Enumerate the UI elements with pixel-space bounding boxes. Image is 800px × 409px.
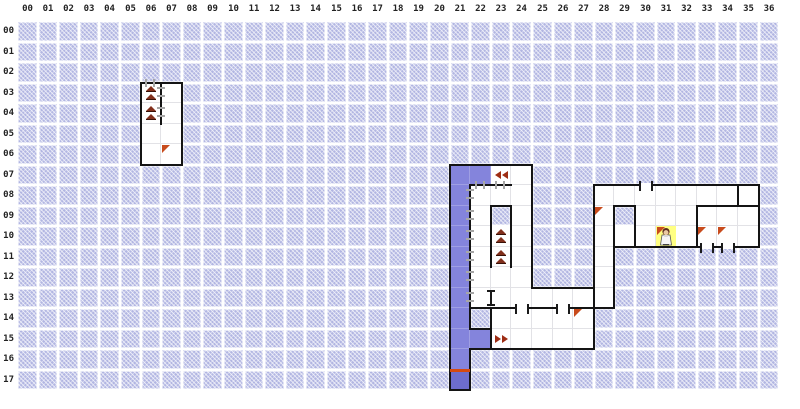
map-cell-unexplored[interactable]: [471, 63, 490, 82]
map-cell-unexplored[interactable]: [554, 22, 572, 41]
map-cell-unexplored[interactable]: [39, 207, 57, 225]
map-cell-unexplored[interactable]: [224, 125, 243, 143]
map-cell-floor[interactable]: [738, 206, 759, 226]
map-cell-unexplored[interactable]: [59, 268, 78, 287]
map-cell-unexplored[interactable]: [286, 330, 304, 348]
map-cell-unexplored[interactable]: [286, 43, 304, 61]
map-cell-unexplored[interactable]: [698, 289, 716, 307]
map-cell-unexplored[interactable]: [657, 145, 675, 164]
map-cell-unexplored[interactable]: [389, 207, 407, 225]
map-cell-unexplored[interactable]: [615, 330, 634, 348]
map-cell-floor[interactable]: [738, 185, 759, 206]
map-cell-unexplored[interactable]: [348, 227, 366, 246]
map-cell-unexplored[interactable]: [245, 84, 263, 102]
map-cell-unexplored[interactable]: [18, 145, 37, 164]
map-cell-unexplored[interactable]: [80, 207, 98, 225]
map-cell-unexplored[interactable]: [677, 330, 696, 348]
map-cell-unexplored[interactable]: [739, 125, 758, 143]
map-cell-unexplored[interactable]: [512, 145, 531, 164]
map-cell-unexplored[interactable]: [100, 207, 119, 225]
map-cell-unexplored[interactable]: [389, 104, 407, 123]
map-cell-unexplored[interactable]: [739, 248, 758, 266]
map-cell-unexplored[interactable]: [18, 289, 37, 307]
map-cell-unexplored[interactable]: [142, 330, 160, 348]
map-cell-unexplored[interactable]: [183, 309, 201, 328]
map-cell-unexplored[interactable]: [183, 43, 201, 61]
map-cell-unexplored[interactable]: [286, 104, 304, 123]
map-cell-unexplored[interactable]: [430, 125, 449, 143]
map-cell-unexplored[interactable]: [533, 145, 552, 164]
map-cell-unexplored[interactable]: [698, 63, 716, 82]
map-cell-unexplored[interactable]: [224, 104, 243, 123]
map-cell-unexplored[interactable]: [348, 309, 366, 328]
map-cell-unexplored[interactable]: [121, 166, 140, 184]
map-cell-floor[interactable]: [656, 206, 676, 226]
map-cell-unexplored[interactable]: [554, 186, 572, 205]
map-cell-floor[interactable]: [532, 329, 553, 349]
map-cell-unexplored[interactable]: [574, 207, 593, 225]
map-cell-unexplored[interactable]: [677, 268, 696, 287]
map-cell-unexplored[interactable]: [121, 227, 140, 246]
map-cell-unexplored[interactable]: [368, 227, 387, 246]
map-cell-unexplored[interactable]: [224, 145, 243, 164]
map-cell-unexplored[interactable]: [636, 268, 655, 287]
map-cell-unexplored[interactable]: [59, 43, 78, 61]
player-marker[interactable]: [659, 227, 673, 250]
map-cell-floor[interactable]: [635, 226, 656, 247]
map-cell-unexplored[interactable]: [533, 104, 552, 123]
map-cell-unexplored[interactable]: [265, 84, 284, 102]
map-cell-unexplored[interactable]: [389, 145, 407, 164]
map-cell-unexplored[interactable]: [39, 125, 57, 143]
map-cell-unexplored[interactable]: [698, 166, 716, 184]
map-cell-unexplored[interactable]: [739, 371, 758, 389]
map-cell-unexplored[interactable]: [224, 350, 243, 369]
map-cell-unexplored[interactable]: [203, 125, 222, 143]
map-cell-unexplored[interactable]: [224, 84, 243, 102]
map-cell-unexplored[interactable]: [698, 84, 716, 102]
map-cell-unexplored[interactable]: [595, 350, 613, 369]
map-cell-unexplored[interactable]: [286, 268, 304, 287]
map-cell-unexplored[interactable]: [203, 248, 222, 266]
map-cell-unexplored[interactable]: [327, 22, 346, 41]
map-cell-unexplored[interactable]: [80, 43, 98, 61]
map-cell-unexplored[interactable]: [59, 248, 78, 266]
map-cell-unexplored[interactable]: [162, 22, 181, 41]
map-cell-unexplored[interactable]: [18, 84, 37, 102]
map-cell-unexplored[interactable]: [430, 145, 449, 164]
map-cell-unexplored[interactable]: [327, 186, 346, 205]
map-cell-unexplored[interactable]: [121, 84, 140, 102]
map-cell-unexplored[interactable]: [265, 227, 284, 246]
map-cell-unexplored[interactable]: [533, 227, 552, 246]
map-cell-unexplored[interactable]: [574, 84, 593, 102]
map-cell-unexplored[interactable]: [100, 125, 119, 143]
map-cell-unexplored[interactable]: [409, 289, 428, 307]
map-cell-unexplored[interactable]: [18, 371, 37, 389]
map-cell-unexplored[interactable]: [121, 63, 140, 82]
map-cell-floor[interactable]: [594, 247, 614, 267]
map-cell-unexplored[interactable]: [100, 309, 119, 328]
map-cell-unexplored[interactable]: [18, 125, 37, 143]
map-cell-unexplored[interactable]: [430, 84, 449, 102]
map-cell-unexplored[interactable]: [348, 22, 366, 41]
map-cell-unexplored[interactable]: [265, 145, 284, 164]
map-cell-unexplored[interactable]: [492, 43, 510, 61]
map-cell-unexplored[interactable]: [286, 22, 304, 41]
map-cell-unexplored[interactable]: [224, 22, 243, 41]
map-cell-unexplored[interactable]: [327, 145, 346, 164]
map-cell-unexplored[interactable]: [18, 63, 37, 82]
map-cell-unexplored[interactable]: [59, 125, 78, 143]
map-cell-unexplored[interactable]: [183, 166, 201, 184]
map-cell-unexplored[interactable]: [574, 371, 593, 389]
map-cell-unexplored[interactable]: [430, 104, 449, 123]
map-cell-unexplored[interactable]: [739, 145, 758, 164]
map-cell-unexplored[interactable]: [451, 145, 469, 164]
map-cell-unexplored[interactable]: [533, 125, 552, 143]
map-cell-unexplored[interactable]: [306, 248, 325, 266]
map-cell-unexplored[interactable]: [430, 248, 449, 266]
door-icon[interactable]: [466, 271, 474, 283]
map-cell-unexplored[interactable]: [739, 84, 758, 102]
map-cell-unexplored[interactable]: [121, 104, 140, 123]
map-cell-unexplored[interactable]: [574, 227, 593, 246]
map-cell-unexplored[interactable]: [554, 227, 572, 246]
map-cell-unexplored[interactable]: [368, 330, 387, 348]
map-cell-unexplored[interactable]: [368, 43, 387, 61]
map-cell-unexplored[interactable]: [203, 186, 222, 205]
map-cell-unexplored[interactable]: [409, 330, 428, 348]
map-cell-unexplored[interactable]: [739, 330, 758, 348]
map-cell-unexplored[interactable]: [760, 22, 778, 41]
map-cell-unexplored[interactable]: [718, 22, 737, 41]
map-cell-unexplored[interactable]: [574, 248, 593, 266]
map-cell-floor[interactable]: [614, 185, 635, 206]
map-cell-unexplored[interactable]: [142, 186, 160, 205]
map-cell-unexplored[interactable]: [59, 371, 78, 389]
map-cell-unexplored[interactable]: [80, 248, 98, 266]
map-cell-unexplored[interactable]: [512, 43, 531, 61]
map-cell-unexplored[interactable]: [286, 145, 304, 164]
map-cell-unexplored[interactable]: [677, 166, 696, 184]
map-cell-unexplored[interactable]: [39, 186, 57, 205]
map-cell-unexplored[interactable]: [39, 350, 57, 369]
door-icon[interactable]: [157, 107, 165, 119]
map-cell-unexplored[interactable]: [306, 186, 325, 205]
map-cell-unexplored[interactable]: [59, 104, 78, 123]
map-cell-unexplored[interactable]: [760, 63, 778, 82]
map-cell-unexplored[interactable]: [224, 371, 243, 389]
map-cell-unexplored[interactable]: [636, 309, 655, 328]
map-cell-unexplored[interactable]: [430, 330, 449, 348]
map-cell-floor[interactable]: [511, 329, 532, 349]
map-cell-unexplored[interactable]: [59, 227, 78, 246]
map-cell-unexplored[interactable]: [245, 207, 263, 225]
map-cell-unexplored[interactable]: [760, 289, 778, 307]
map-cell-unexplored[interactable]: [492, 207, 510, 225]
map-cell-unexplored[interactable]: [327, 330, 346, 348]
map-cell-unexplored[interactable]: [615, 43, 634, 61]
map-cell-unexplored[interactable]: [554, 371, 572, 389]
map-cell-unexplored[interactable]: [389, 350, 407, 369]
map-cell-unexplored[interactable]: [100, 227, 119, 246]
map-cell-unexplored[interactable]: [18, 22, 37, 41]
map-cell-unexplored[interactable]: [306, 63, 325, 82]
map-cell-unexplored[interactable]: [121, 350, 140, 369]
map-cell-unexplored[interactable]: [760, 186, 778, 205]
door-icon[interactable]: [466, 189, 474, 201]
map-cell-unexplored[interactable]: [327, 309, 346, 328]
map-cell-unexplored[interactable]: [657, 104, 675, 123]
map-cell-unexplored[interactable]: [533, 268, 552, 287]
map-cell-unexplored[interactable]: [409, 43, 428, 61]
map-cell-unexplored[interactable]: [245, 63, 263, 82]
map-cell-unexplored[interactable]: [183, 350, 201, 369]
map-cell-unexplored[interactable]: [554, 63, 572, 82]
map-cell-unexplored[interactable]: [636, 43, 655, 61]
map-cell-unexplored[interactable]: [306, 268, 325, 287]
map-cell-floor[interactable]: [141, 144, 161, 165]
map-cell-unexplored[interactable]: [595, 104, 613, 123]
map-cell-unexplored[interactable]: [533, 371, 552, 389]
map-cell-unexplored[interactable]: [306, 207, 325, 225]
map-cell-floor[interactable]: [573, 329, 594, 349]
map-cell-unexplored[interactable]: [574, 186, 593, 205]
map-cell-unexplored[interactable]: [348, 145, 366, 164]
map-cell-unexplored[interactable]: [554, 248, 572, 266]
map-cell-unexplored[interactable]: [121, 371, 140, 389]
map-cell-unexplored[interactable]: [471, 22, 490, 41]
map-cell-unexplored[interactable]: [574, 43, 593, 61]
map-cell-unexplored[interactable]: [121, 43, 140, 61]
map-cell-unexplored[interactable]: [59, 84, 78, 102]
map-cell-floor[interactable]: [594, 185, 614, 206]
map-cell-unexplored[interactable]: [389, 268, 407, 287]
map-cell-purpledark[interactable]: [450, 370, 470, 390]
map-cell-unexplored[interactable]: [59, 166, 78, 184]
map-cell-unexplored[interactable]: [327, 248, 346, 266]
map-cell-unexplored[interactable]: [739, 22, 758, 41]
map-cell-unexplored[interactable]: [121, 186, 140, 205]
map-cell-unexplored[interactable]: [80, 84, 98, 102]
map-cell-unexplored[interactable]: [80, 22, 98, 41]
map-cell-unexplored[interactable]: [203, 104, 222, 123]
map-cell-unexplored[interactable]: [677, 289, 696, 307]
map-cell-unexplored[interactable]: [636, 84, 655, 102]
map-cell-unexplored[interactable]: [430, 63, 449, 82]
map-cell-unexplored[interactable]: [183, 371, 201, 389]
map-cell-unexplored[interactable]: [162, 166, 181, 184]
map-cell-unexplored[interactable]: [142, 207, 160, 225]
map-cell-unexplored[interactable]: [368, 84, 387, 102]
map-cell-unexplored[interactable]: [224, 268, 243, 287]
map-cell-unexplored[interactable]: [368, 125, 387, 143]
map-cell-unexplored[interactable]: [739, 104, 758, 123]
map-cell-floor[interactable]: [594, 226, 614, 247]
map-cell-unexplored[interactable]: [615, 84, 634, 102]
map-cell-unexplored[interactable]: [595, 371, 613, 389]
map-cell-unexplored[interactable]: [183, 227, 201, 246]
map-cell-unexplored[interactable]: [245, 186, 263, 205]
map-cell-unexplored[interactable]: [80, 350, 98, 369]
map-cell-unexplored[interactable]: [657, 63, 675, 82]
map-cell-unexplored[interactable]: [162, 63, 181, 82]
map-cell-unexplored[interactable]: [245, 330, 263, 348]
map-cell-unexplored[interactable]: [554, 104, 572, 123]
map-cell-purple[interactable]: [470, 329, 491, 349]
map-cell-unexplored[interactable]: [533, 22, 552, 41]
map-cell-unexplored[interactable]: [80, 309, 98, 328]
map-cell-unexplored[interactable]: [657, 309, 675, 328]
map-cell-unexplored[interactable]: [533, 248, 552, 266]
map-cell-unexplored[interactable]: [162, 330, 181, 348]
map-cell-unexplored[interactable]: [760, 227, 778, 246]
map-cell-unexplored[interactable]: [409, 63, 428, 82]
map-cell-unexplored[interactable]: [574, 22, 593, 41]
map-cell-unexplored[interactable]: [760, 309, 778, 328]
map-cell-unexplored[interactable]: [430, 186, 449, 205]
door-icon[interactable]: [466, 292, 474, 304]
map-cell-unexplored[interactable]: [574, 63, 593, 82]
map-cell-unexplored[interactable]: [224, 63, 243, 82]
map-cell-unexplored[interactable]: [368, 22, 387, 41]
map-cell-unexplored[interactable]: [409, 84, 428, 102]
door-icon[interactable]: [466, 251, 474, 263]
map-cell-unexplored[interactable]: [739, 309, 758, 328]
map-cell-unexplored[interactable]: [183, 22, 201, 41]
map-cell-floor[interactable]: [656, 185, 676, 206]
map-cell-unexplored[interactable]: [121, 22, 140, 41]
map-cell-floor[interactable]: [161, 124, 182, 144]
door-gap-icon[interactable]: [722, 245, 734, 249]
map-cell-unexplored[interactable]: [739, 63, 758, 82]
map-cell-unexplored[interactable]: [430, 227, 449, 246]
map-cell-unexplored[interactable]: [80, 186, 98, 205]
map-cell-unexplored[interactable]: [162, 227, 181, 246]
map-cell-unexplored[interactable]: [265, 248, 284, 266]
map-cell-unexplored[interactable]: [512, 350, 531, 369]
map-cell-floor[interactable]: [717, 206, 738, 226]
map-cell-unexplored[interactable]: [698, 330, 716, 348]
map-cell-unexplored[interactable]: [162, 207, 181, 225]
map-cell-unexplored[interactable]: [492, 371, 510, 389]
map-cell-unexplored[interactable]: [245, 125, 263, 143]
map-cell-unexplored[interactable]: [286, 309, 304, 328]
map-cell-unexplored[interactable]: [574, 166, 593, 184]
map-cell-unexplored[interactable]: [595, 84, 613, 102]
map-cell-unexplored[interactable]: [100, 289, 119, 307]
door-gap-icon[interactable]: [701, 245, 713, 249]
map-cell-unexplored[interactable]: [636, 289, 655, 307]
map-cell-unexplored[interactable]: [368, 145, 387, 164]
map-cell-unexplored[interactable]: [636, 248, 655, 266]
map-cell-unexplored[interactable]: [430, 371, 449, 389]
map-cell-unexplored[interactable]: [368, 248, 387, 266]
map-cell-floor[interactable]: [491, 267, 511, 288]
map-cell-unexplored[interactable]: [142, 227, 160, 246]
map-cell-unexplored[interactable]: [739, 43, 758, 61]
map-cell-unexplored[interactable]: [657, 84, 675, 102]
map-cell-unexplored[interactable]: [533, 84, 552, 102]
map-cell-unexplored[interactable]: [718, 145, 737, 164]
map-cell-unexplored[interactable]: [80, 104, 98, 123]
map-cell-unexplored[interactable]: [348, 43, 366, 61]
map-cell-unexplored[interactable]: [595, 22, 613, 41]
map-cell-floor[interactable]: [697, 206, 717, 226]
map-cell-unexplored[interactable]: [760, 350, 778, 369]
map-cell-unexplored[interactable]: [533, 43, 552, 61]
map-cell-unexplored[interactable]: [409, 309, 428, 328]
map-cell-unexplored[interactable]: [574, 104, 593, 123]
map-cell-unexplored[interactable]: [718, 84, 737, 102]
map-cell-unexplored[interactable]: [760, 371, 778, 389]
map-cell-unexplored[interactable]: [224, 289, 243, 307]
map-cell-unexplored[interactable]: [718, 330, 737, 348]
map-cell-unexplored[interactable]: [80, 145, 98, 164]
map-cell-unexplored[interactable]: [595, 166, 613, 184]
map-cell-unexplored[interactable]: [760, 207, 778, 225]
map-cell-unexplored[interactable]: [698, 309, 716, 328]
map-cell-unexplored[interactable]: [162, 309, 181, 328]
map-cell-floor[interactable]: [676, 206, 697, 226]
map-cell-unexplored[interactable]: [306, 22, 325, 41]
map-cell-unexplored[interactable]: [265, 330, 284, 348]
map-cell-unexplored[interactable]: [409, 145, 428, 164]
map-cell-unexplored[interactable]: [657, 248, 675, 266]
map-cell-unexplored[interactable]: [245, 248, 263, 266]
map-cell-unexplored[interactable]: [492, 63, 510, 82]
map-cell-unexplored[interactable]: [327, 289, 346, 307]
map-cell-unexplored[interactable]: [368, 207, 387, 225]
map-cell-unexplored[interactable]: [554, 207, 572, 225]
map-cell-unexplored[interactable]: [512, 104, 531, 123]
map-cell-unexplored[interactable]: [306, 145, 325, 164]
map-cell-unexplored[interactable]: [615, 289, 634, 307]
map-cell-unexplored[interactable]: [265, 289, 284, 307]
map-cell-unexplored[interactable]: [409, 207, 428, 225]
map-cell-unexplored[interactable]: [471, 84, 490, 102]
map-cell-unexplored[interactable]: [698, 371, 716, 389]
map-cell-unexplored[interactable]: [389, 371, 407, 389]
map-cell-unexplored[interactable]: [100, 84, 119, 102]
map-cell-unexplored[interactable]: [389, 227, 407, 246]
map-cell-unexplored[interactable]: [615, 166, 634, 184]
map-cell-unexplored[interactable]: [698, 104, 716, 123]
map-cell-unexplored[interactable]: [265, 63, 284, 82]
map-cell-unexplored[interactable]: [348, 371, 366, 389]
map-cell-unexplored[interactable]: [718, 43, 737, 61]
map-cell-unexplored[interactable]: [554, 84, 572, 102]
map-cell-unexplored[interactable]: [245, 309, 263, 328]
map-cell-unexplored[interactable]: [389, 186, 407, 205]
map-cell-unexplored[interactable]: [203, 22, 222, 41]
map-cell-unexplored[interactable]: [409, 248, 428, 266]
map-cell-unexplored[interactable]: [348, 207, 366, 225]
map-cell-unexplored[interactable]: [718, 125, 737, 143]
map-cell-unexplored[interactable]: [183, 125, 201, 143]
map-cell-unexplored[interactable]: [286, 186, 304, 205]
map-cell-unexplored[interactable]: [389, 43, 407, 61]
map-cell-unexplored[interactable]: [265, 43, 284, 61]
map-cell-unexplored[interactable]: [39, 289, 57, 307]
map-cell-floor[interactable]: [141, 124, 161, 144]
map-cell-floor[interactable]: [614, 226, 635, 247]
map-cell-unexplored[interactable]: [718, 268, 737, 287]
map-cell-unexplored[interactable]: [636, 371, 655, 389]
map-cell-unexplored[interactable]: [100, 145, 119, 164]
map-cell-floor[interactable]: [594, 267, 614, 288]
